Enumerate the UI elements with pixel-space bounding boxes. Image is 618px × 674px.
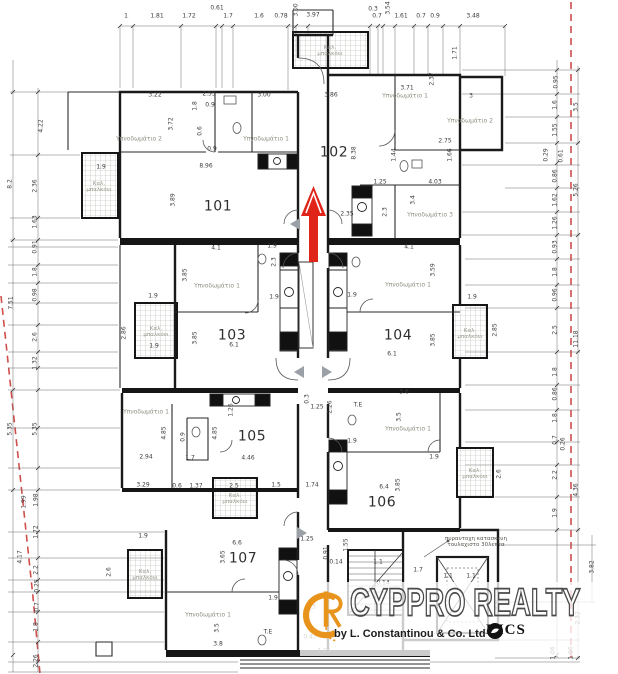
watermark-byline: by L. Constantinou & Co. Ltd <box>334 628 486 640</box>
boundary-line-left <box>1 296 40 674</box>
floor-plan-drawing <box>0 0 618 674</box>
realty-watermark: CYPPRO REALTY by L. Constantinou & Co. L… <box>300 582 618 656</box>
rics-badge: RICS <box>486 622 526 639</box>
balcony-107 <box>128 550 162 598</box>
rics-lion-icon <box>486 622 504 640</box>
balcony-104 <box>453 305 487 358</box>
kitchen-units <box>210 154 372 614</box>
triangle-left-icon <box>294 366 304 378</box>
balcony-102-top <box>293 32 368 68</box>
dimension-framework <box>8 26 596 672</box>
triangle-left-icon <box>290 218 300 230</box>
red-location-arrow <box>301 186 326 262</box>
triangle-right-icon <box>322 366 332 378</box>
floor-plan-page: 11.811.720.611.71.60.783.003.970.30.73.5… <box>0 0 618 674</box>
watermark-brand: CYPPRO REALTY <box>350 582 581 626</box>
balcony-101 <box>82 153 118 218</box>
balcony-103 <box>135 303 177 358</box>
triangle-right-icon <box>297 527 307 539</box>
light-well <box>299 262 313 348</box>
balcony-106 <box>457 448 493 497</box>
balcony-105 <box>213 478 257 518</box>
note-leader <box>424 540 449 557</box>
